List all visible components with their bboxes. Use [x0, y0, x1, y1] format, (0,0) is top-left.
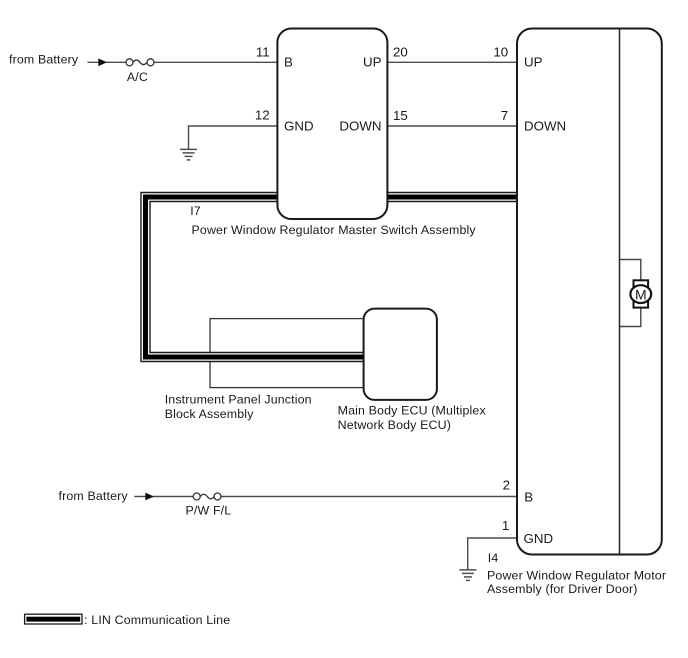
svg-text:A/C: A/C [127, 70, 148, 84]
svg-text:M: M [635, 286, 647, 302]
svg-text:12: 12 [255, 108, 270, 123]
svg-text:7: 7 [501, 108, 508, 123]
svg-text:15: 15 [393, 108, 408, 123]
svg-text:I7: I7 [190, 204, 201, 218]
svg-text:Main Body ECU (Multiplex: Main Body ECU (Multiplex [338, 403, 487, 417]
svg-text:DOWN: DOWN [524, 118, 566, 133]
svg-text:P/W F/L: P/W F/L [186, 504, 232, 518]
svg-text:11: 11 [256, 45, 270, 60]
svg-text:Instrument Panel Junction: Instrument Panel Junction [165, 392, 312, 406]
svg-text:UP: UP [363, 55, 382, 70]
svg-text:DOWN: DOWN [339, 118, 381, 133]
svg-text:GND: GND [284, 118, 314, 133]
svg-text:Power Window Regulator Master: Power Window Regulator Master Switch Ass… [192, 223, 477, 237]
svg-text:from Battery: from Battery [59, 489, 129, 503]
svg-text:Assembly (for Driver Door): Assembly (for Driver Door) [487, 582, 638, 596]
svg-text:10: 10 [493, 45, 508, 60]
svg-text:1: 1 [502, 518, 509, 533]
svg-text:from Battery: from Battery [9, 53, 79, 67]
svg-text:: LIN Communication Line: : LIN Communication Line [84, 613, 230, 627]
svg-text:2: 2 [503, 477, 510, 492]
svg-text:Power Window Regulator Motor: Power Window Regulator Motor [487, 569, 666, 583]
svg-text:Block Assembly: Block Assembly [165, 407, 255, 421]
svg-text:B: B [524, 489, 533, 504]
svg-text:20: 20 [393, 45, 408, 60]
svg-text:I4: I4 [488, 551, 499, 565]
svg-text:UP: UP [524, 55, 543, 70]
svg-text:GND: GND [524, 531, 554, 546]
svg-text:Network Body ECU): Network Body ECU) [338, 418, 451, 432]
svg-text:B: B [284, 55, 293, 70]
